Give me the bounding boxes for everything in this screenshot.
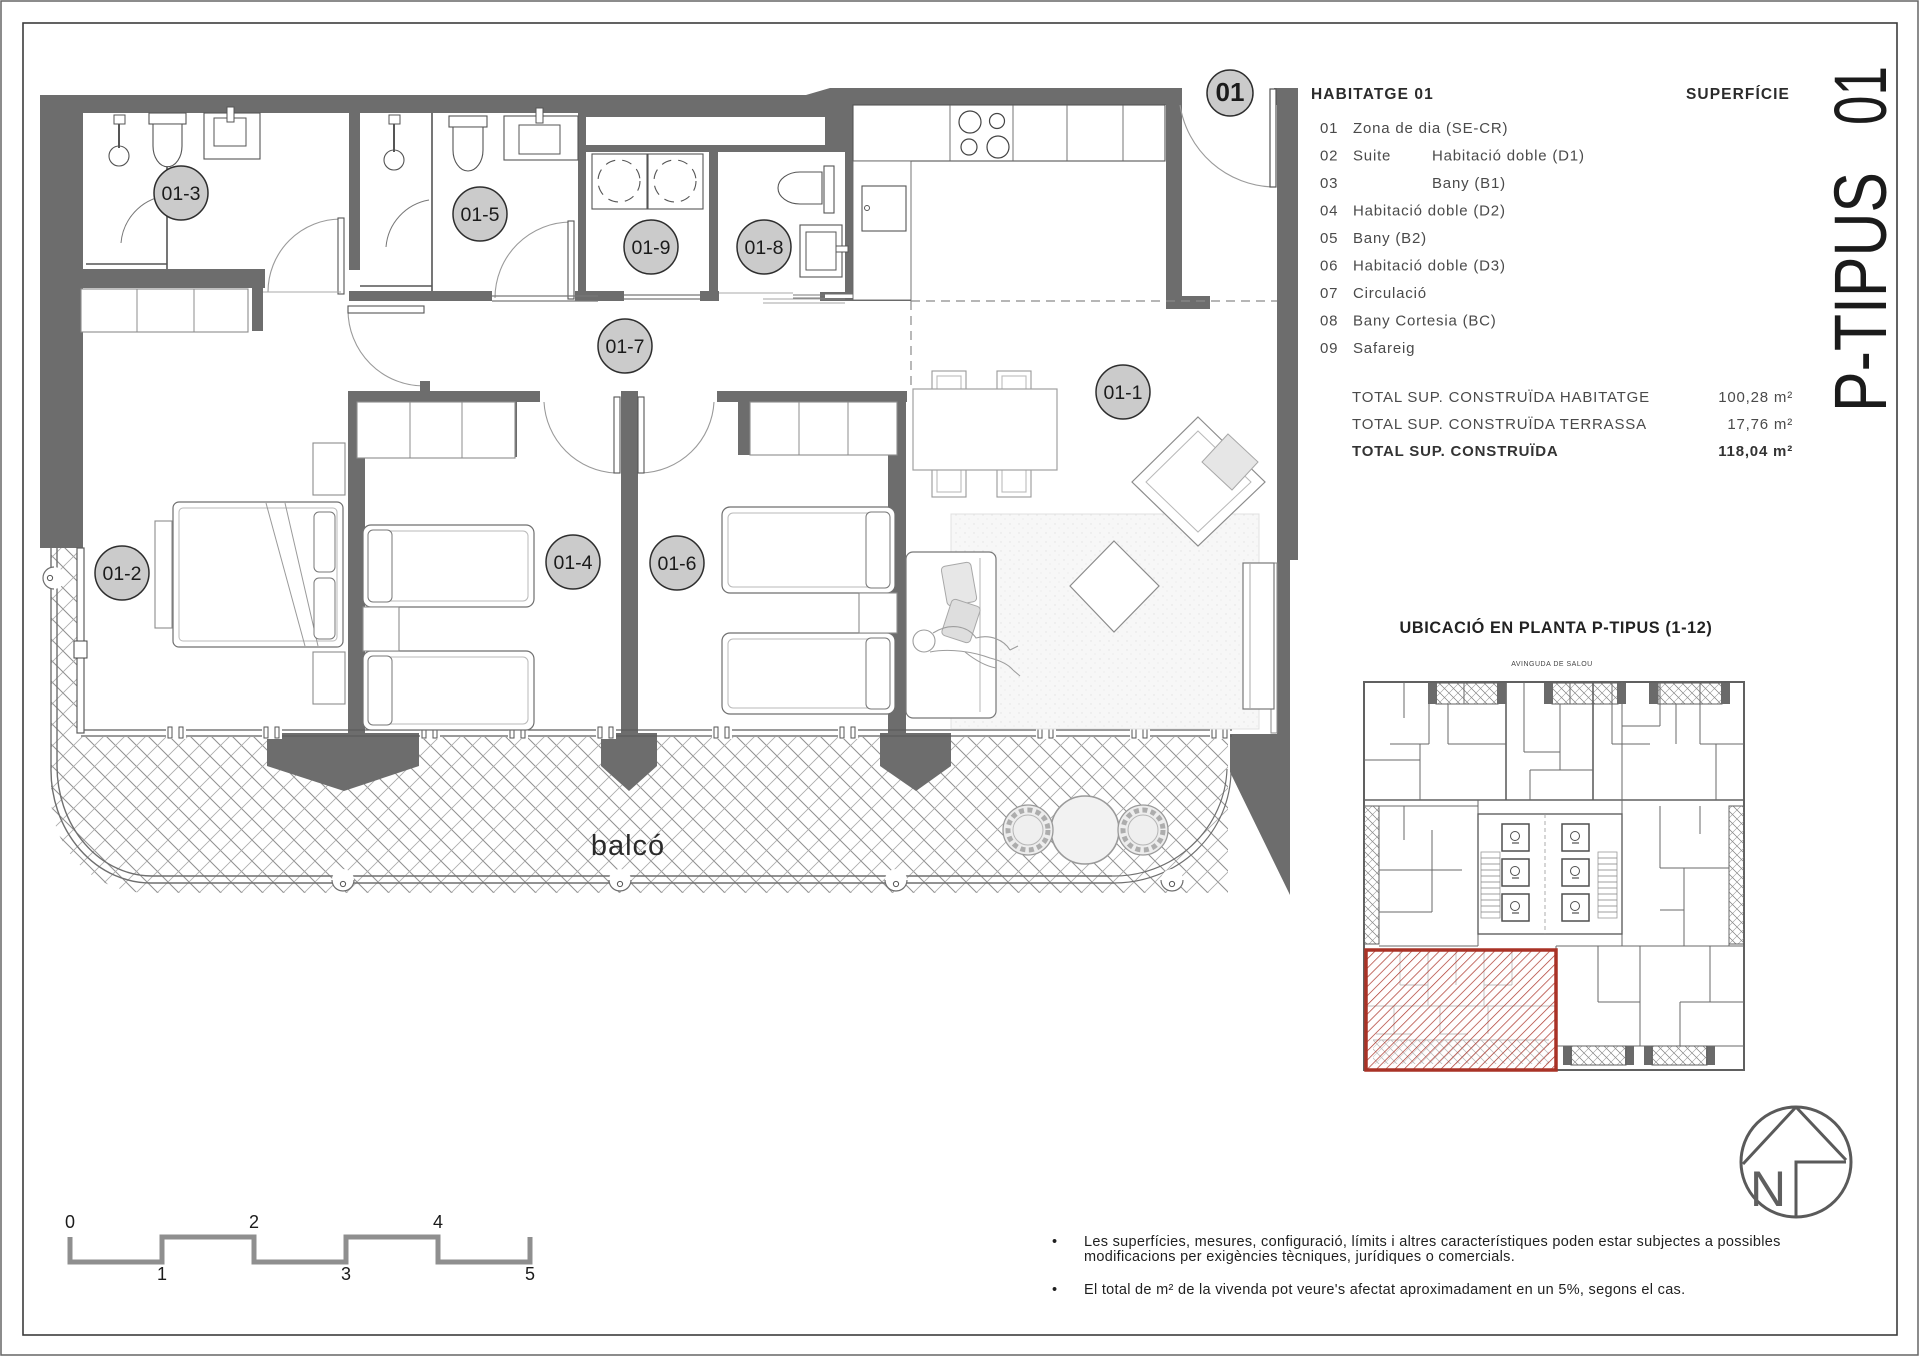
svg-text:Habitació doble (D2): Habitació doble (D2)	[1353, 203, 1506, 220]
svg-text:HABITATGE 01: HABITATGE 01	[1311, 86, 1434, 103]
svg-text:Habitació doble (D3): Habitació doble (D3)	[1353, 258, 1506, 275]
svg-text:Bany Cortesia (BC): Bany Cortesia (BC)	[1353, 313, 1497, 330]
svg-text:01: 01	[1320, 120, 1338, 137]
svg-text:01: 01	[1216, 77, 1245, 107]
svg-text:Les superfícies, mesures, conf: Les superfícies, mesures, configuració, …	[1084, 1234, 1781, 1250]
svg-text:UBICACIÓ EN PLANTA P-TIPUS (1-: UBICACIÓ EN PLANTA P-TIPUS (1-12)	[1400, 618, 1713, 637]
svg-text:Habitació doble (D1): Habitació doble (D1)	[1432, 148, 1585, 165]
svg-text:08: 08	[1320, 313, 1338, 330]
svg-text:•: •	[1052, 1282, 1057, 1298]
svg-text:01-5: 01-5	[460, 204, 499, 226]
svg-text:El total de m² de la vivenda p: El total de m² de la vivenda pot veure's…	[1084, 1282, 1685, 1298]
svg-text:4: 4	[433, 1212, 443, 1232]
svg-text:Circulació: Circulació	[1353, 285, 1427, 302]
svg-text:3: 3	[341, 1264, 351, 1284]
svg-text:N: N	[1750, 1161, 1786, 1217]
svg-text:TOTAL SUP. CONSTRUÏDA TERRASSA: TOTAL SUP. CONSTRUÏDA TERRASSA	[1352, 416, 1647, 433]
svg-text:P-TIPUS: P-TIPUS	[1819, 172, 1902, 412]
svg-text:Bany (B2): Bany (B2)	[1353, 230, 1427, 247]
svg-text:01-6: 01-6	[657, 553, 696, 575]
svg-text:05: 05	[1320, 230, 1338, 247]
svg-text:01-1: 01-1	[1103, 382, 1142, 404]
svg-text:TOTAL SUP. CONSTRUÏDA HABITATG: TOTAL SUP. CONSTRUÏDA HABITATGE	[1352, 389, 1650, 406]
svg-text:100,28 m²: 100,28 m²	[1718, 389, 1793, 406]
svg-text:Safareig: Safareig	[1353, 340, 1415, 357]
svg-text:TOTAL SUP. CONSTRUÏDA: TOTAL SUP. CONSTRUÏDA	[1352, 443, 1559, 460]
svg-text:01-8: 01-8	[744, 237, 783, 259]
svg-text:118,04 m²: 118,04 m²	[1718, 443, 1793, 460]
svg-text:07: 07	[1320, 285, 1338, 302]
svg-text:Bany (B1): Bany (B1)	[1432, 175, 1506, 192]
svg-text:Zona de dia (SE-CR): Zona de dia (SE-CR)	[1353, 120, 1508, 137]
svg-text:SUPERFÍCIE: SUPERFÍCIE	[1686, 86, 1790, 103]
svg-text:01-4: 01-4	[553, 552, 592, 574]
svg-text:modificacions per exigències t: modificacions per exigències tècniques, …	[1084, 1249, 1515, 1265]
svg-text:•: •	[1052, 1234, 1057, 1250]
svg-text:06: 06	[1320, 258, 1338, 275]
svg-text:2: 2	[249, 1212, 259, 1232]
svg-text:balcó: balcó	[591, 830, 665, 862]
svg-text:0: 0	[65, 1212, 75, 1232]
svg-text:5: 5	[525, 1264, 535, 1284]
svg-text:01-3: 01-3	[161, 183, 200, 205]
svg-text:09: 09	[1320, 340, 1338, 357]
svg-text:01-9: 01-9	[631, 237, 670, 259]
svg-text:17,76 m²: 17,76 m²	[1727, 416, 1793, 433]
svg-text:03: 03	[1320, 175, 1338, 192]
svg-text:01-7: 01-7	[605, 336, 644, 358]
svg-text:04: 04	[1320, 203, 1338, 220]
svg-text:Suite: Suite	[1353, 148, 1391, 165]
svg-text:1: 1	[157, 1264, 167, 1284]
svg-text:AVINGUDA DE SALOU: AVINGUDA DE SALOU	[1511, 661, 1593, 668]
svg-text:01-2: 01-2	[102, 563, 141, 585]
svg-text:01: 01	[1819, 66, 1902, 125]
svg-text:02: 02	[1320, 148, 1338, 165]
